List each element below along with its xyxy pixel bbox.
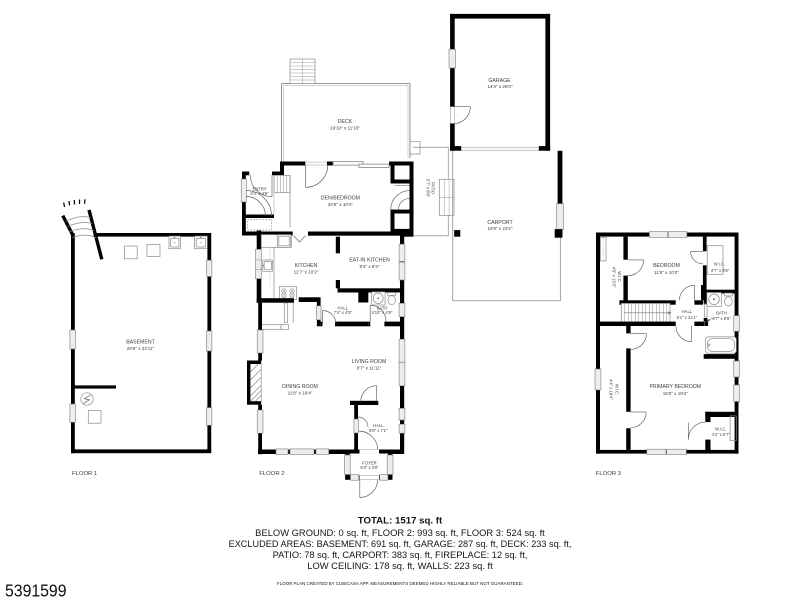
svg-text:FLOOR 2: FLOOR 2 <box>259 471 284 477</box>
svg-text:KITCHEN: KITCHEN <box>295 263 318 269</box>
svg-text:4'7" x 8'5": 4'7" x 8'5" <box>711 268 730 273</box>
svg-text:4'4" x 5'7": 4'4" x 5'7" <box>712 432 731 437</box>
svg-text:BELOW GROUND: 0 sq. ft, FLOOR: BELOW GROUND: 0 sq. ft, FLOOR 2: 993 sq.… <box>255 528 545 538</box>
svg-text:EAT-IN KITCHEN: EAT-IN KITCHEN <box>349 257 390 263</box>
svg-text:GARAGE: GARAGE <box>488 78 511 84</box>
svg-text:16'5" x 19'4": 16'5" x 19'4" <box>663 391 689 396</box>
svg-text:W.I.C.: W.I.C. <box>715 426 726 431</box>
svg-text:DINING ROOM: DINING ROOM <box>282 384 318 390</box>
svg-text:20'6" x 32'11": 20'6" x 32'11" <box>127 346 155 351</box>
svg-text:BEDROOM: BEDROOM <box>653 263 680 269</box>
svg-text:9'4" x 8'4": 9'4" x 8'4" <box>359 264 379 269</box>
svg-text:DECK: DECK <box>338 119 353 125</box>
svg-text:6'9" x 7'1": 6'9" x 7'1" <box>369 428 388 433</box>
svg-text:4'7" x 9'5": 4'7" x 9'5" <box>712 316 731 321</box>
svg-text:LIVING ROOM: LIVING ROOM <box>352 359 387 365</box>
svg-text:7'4" x 4'9": 7'4" x 4'9" <box>334 310 353 315</box>
svg-text:BATH: BATH <box>716 310 727 315</box>
svg-text:5391599: 5391599 <box>5 581 67 600</box>
svg-text:LOW CEILING: 178 sq. ft, WALLS: LOW CEILING: 178 sq. ft, WALLS: 223 sq. … <box>307 561 493 571</box>
svg-text:14'4" x 28'0": 14'4" x 28'0" <box>487 84 513 89</box>
svg-text:PATIO: 78 sq. ft, CARPORT: 383: PATIO: 78 sq. ft, CARPORT: 383 sq. ft, F… <box>273 550 528 560</box>
svg-text:FLOOR PLAN CREATED BY CUBICASA: FLOOR PLAN CREATED BY CUBICASA APP. MEAS… <box>277 581 523 587</box>
svg-text:BASEMENT: BASEMENT <box>126 339 155 345</box>
svg-text:9'7" x 11'11": 9'7" x 11'11" <box>357 365 382 370</box>
svg-text:5'1" x 21'1": 5'1" x 21'1" <box>677 315 698 320</box>
svg-text:CARPORT: CARPORT <box>487 220 513 226</box>
svg-text:19'10" x 11'10": 19'10" x 11'10" <box>330 126 360 131</box>
svg-text:W.I.C.: W.I.C. <box>614 384 619 395</box>
svg-text:FLOOR 1: FLOOR 1 <box>72 471 97 477</box>
svg-text:W.I.C.: W.I.C. <box>714 262 725 267</box>
svg-text:DEN/BEDROOM: DEN/BEDROOM <box>321 195 360 201</box>
svg-text:4'4" x 4'8": 4'4" x 4'8" <box>250 191 269 196</box>
svg-text:6'3" x 3'9": 6'3" x 3'9" <box>360 465 379 470</box>
svg-text:11'8" x 19'4": 11'8" x 19'4" <box>288 390 313 395</box>
svg-text:11'6" x 10'0": 11'6" x 10'0" <box>654 270 679 275</box>
svg-text:4'4" x 19'4": 4'4" x 19'4" <box>609 379 614 400</box>
svg-text:FLOOR 3: FLOOR 3 <box>596 471 622 477</box>
svg-text:5'7" x 8'9": 5'7" x 8'9" <box>425 179 430 198</box>
svg-text:4'6" x 13'3": 4'6" x 13'3" <box>612 267 617 288</box>
svg-text:W.I.C.: W.I.C. <box>617 271 622 282</box>
svg-text:HALL: HALL <box>682 309 693 314</box>
svg-text:PRIMARY BEDROOM: PRIMARY BEDROOM <box>649 384 701 390</box>
svg-text:20'6" x 10'4": 20'6" x 10'4" <box>328 202 354 207</box>
svg-text:11'7" x 10'2": 11'7" x 10'2" <box>294 270 319 275</box>
svg-text:EXCLUDED AREAS: BASEMENT: 691: EXCLUDED AREAS: BASEMENT: 691 sq. ft, GA… <box>229 539 572 549</box>
svg-text:TOTAL: 1517 sq. ft: TOTAL: 1517 sq. ft <box>358 516 443 527</box>
svg-text:16'9" x 23'2": 16'9" x 23'2" <box>487 226 513 231</box>
